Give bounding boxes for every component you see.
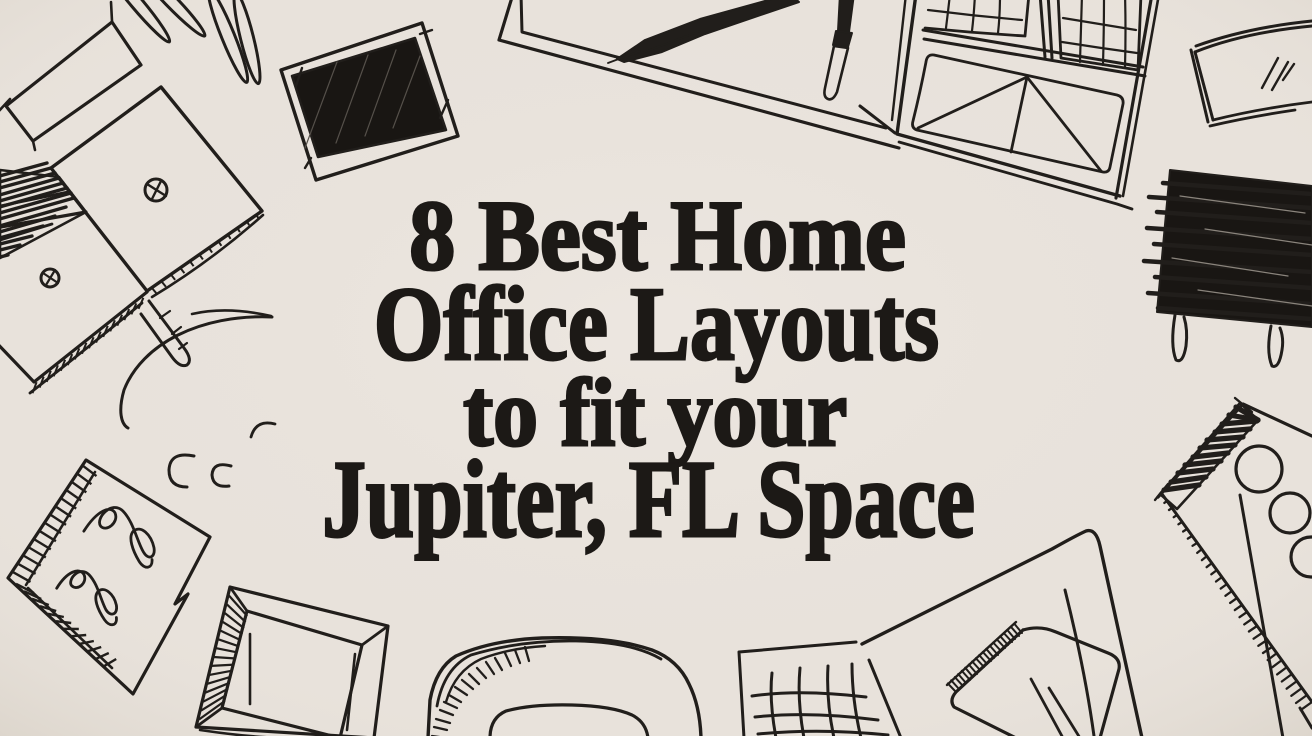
svg-text:Jupiter, FL Space: Jupiter, FL Space: [322, 440, 975, 561]
